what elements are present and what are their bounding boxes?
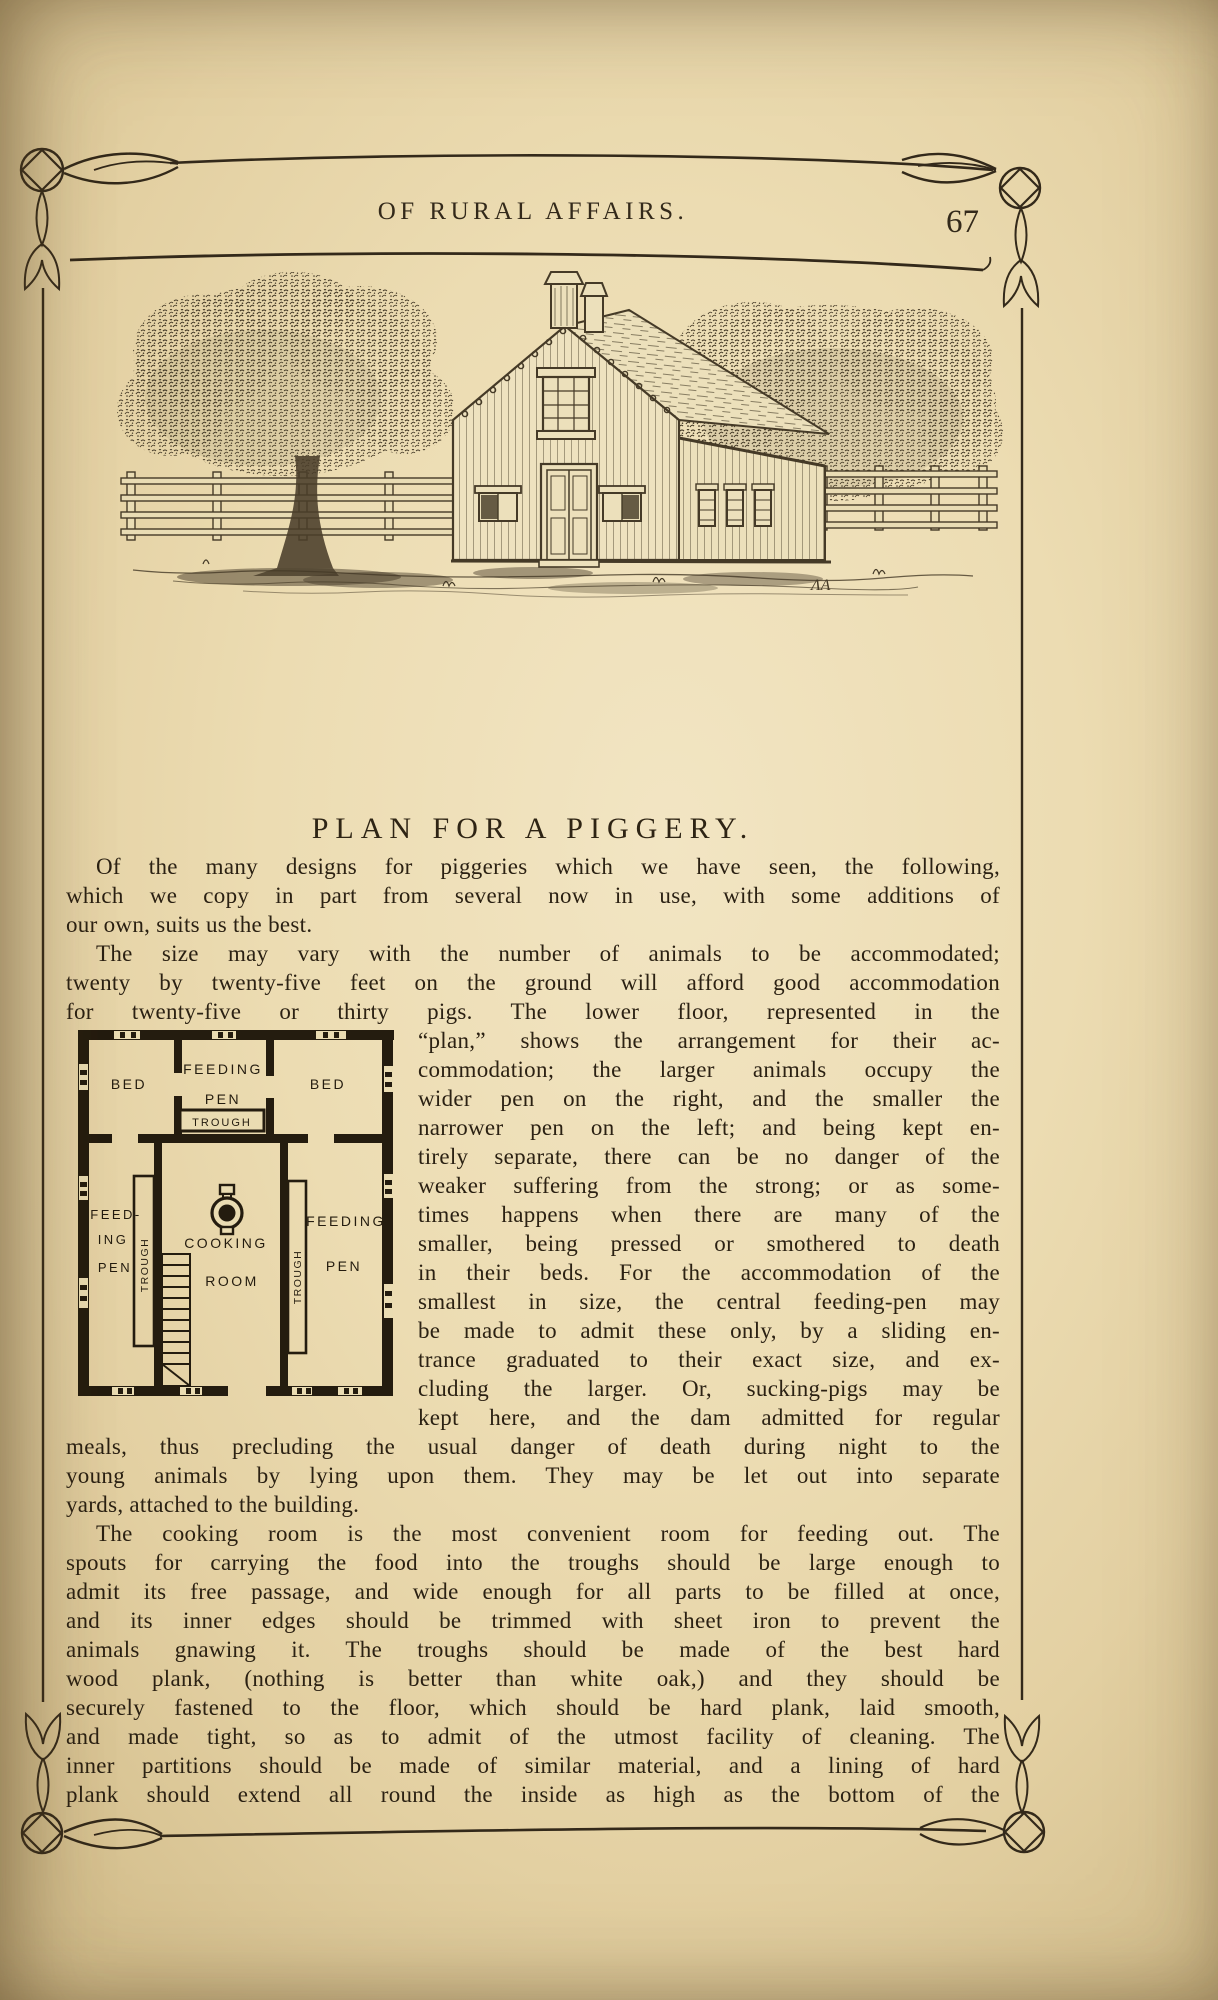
bottom-rule	[160, 1828, 986, 1836]
text-line: inner partitions should be made of simil…	[66, 1751, 1000, 1780]
text-line: our own, suits us the best.	[66, 910, 1000, 939]
label-feed-left-1: FEED-	[90, 1207, 142, 1222]
text-line: narrower pen on the left; and being kept…	[418, 1113, 1000, 1142]
text-line: trance graduated to their exact size, an…	[418, 1345, 1000, 1374]
text-line: The cooking room is the most convenient …	[66, 1519, 1000, 1548]
text-line: smallest in size, the central feeding-pe…	[418, 1287, 1000, 1316]
text-line: which we copy in part from several now i…	[66, 881, 1000, 910]
paragraph-2-beside-plan: “plan,” shows the arrangement for their …	[418, 1026, 1000, 1432]
text-line: for twenty-five or thirty pigs. The lowe…	[66, 997, 1000, 1026]
label-feeding-right: FEEDING	[306, 1213, 386, 1229]
stove-icon	[212, 1185, 242, 1234]
floor-plan-diagram: BED FEEDING PEN TROUGH BED FEED- ING PEN…	[76, 1026, 398, 1400]
text-line: securely fastened to the floor, which sh…	[66, 1693, 1000, 1722]
label-feeding-right-2: PEN	[326, 1258, 362, 1274]
article-heading: PLAN FOR A PIGGERY.	[66, 812, 1000, 846]
text-line: wood plank, (nothing is better than whit…	[66, 1664, 1000, 1693]
label-trough-right: TROUGH	[292, 1250, 304, 1305]
label-trough-top: TROUGH	[192, 1117, 252, 1129]
label-feeding-top-2: PEN	[205, 1091, 241, 1107]
text-line: tirely separate, there can be no danger …	[418, 1142, 1000, 1171]
paragraph-2-full-width: The size may vary with the number of ani…	[66, 939, 1000, 1026]
running-title: OF RURAL AFFAIRS.	[66, 198, 1000, 226]
text-line: be made to admit these only, by a slidin…	[418, 1316, 1000, 1345]
text-line: twenty by twenty-five feet on the ground…	[66, 968, 1000, 997]
text-line: animals gnawing it. The troughs should b…	[66, 1635, 1000, 1664]
text-line: cluding the larger. Or, sucking-pigs may…	[418, 1374, 1000, 1403]
text-line: yards, attached to the building.	[66, 1490, 1000, 1519]
piggery-engraving: ΛA	[113, 268, 1003, 598]
text-line: meals, thus precluding the usual danger …	[66, 1432, 1000, 1461]
stairs	[162, 1254, 190, 1386]
text-line: “plan,” shows the arrangement for their …	[418, 1026, 1000, 1055]
fence-left	[121, 472, 453, 540]
text-line: admit its free passage, and wide enough …	[66, 1577, 1000, 1606]
text-line: young animals by lying upon them. They m…	[66, 1461, 1000, 1490]
text-line: weaker suffering from the strong; or as …	[418, 1171, 1000, 1200]
text-line: wider pen on the right, and the smaller …	[418, 1084, 1000, 1113]
top-rule	[170, 155, 993, 170]
engraver-signature: ΛA	[809, 577, 831, 594]
book-page: OF RURAL AFFAIRS. 67	[0, 0, 1218, 2000]
text-line: and its inner edges should be trimmed wi…	[66, 1606, 1000, 1635]
text-line: commodation; the larger animals occupy t…	[418, 1055, 1000, 1084]
label-cooking: COOKING	[184, 1235, 268, 1251]
text-line: spouts for carrying the food into the tr…	[66, 1548, 1000, 1577]
text-line: plank should extend all round the inside…	[66, 1780, 1000, 1809]
page-number: 67	[946, 204, 979, 241]
text-line: in their beds. For the accommodation of …	[418, 1258, 1000, 1287]
label-feed-left-2: ING	[98, 1232, 129, 1247]
text-line: smaller, being pressed or smothered to d…	[418, 1229, 1000, 1258]
paragraph-2-continuation: meals, thus precluding the usual danger …	[66, 1432, 1000, 1519]
text-line: Of the many designs for piggeries which …	[66, 852, 1000, 881]
paragraph-1: Of the many designs for piggeries which …	[66, 852, 1000, 939]
label-bed-right: BED	[310, 1076, 346, 1092]
label-feeding-top: FEEDING	[183, 1061, 263, 1077]
label-bed-left: BED	[111, 1076, 147, 1092]
label-feed-left-3: PEN	[98, 1260, 132, 1275]
text-line: and made tight, so as to admit of the ut…	[66, 1722, 1000, 1751]
paragraph-3: The cooking room is the most convenient …	[66, 1519, 1000, 1809]
tree-left	[117, 272, 455, 476]
text-line: kept here, and the dam admitted for regu…	[418, 1403, 1000, 1432]
text-line: The size may vary with the number of ani…	[66, 939, 1000, 968]
label-trough-left: TROUGH	[139, 1238, 151, 1293]
text-line: times happens when there are many of the	[418, 1200, 1000, 1229]
label-cooking-room: ROOM	[205, 1273, 259, 1289]
